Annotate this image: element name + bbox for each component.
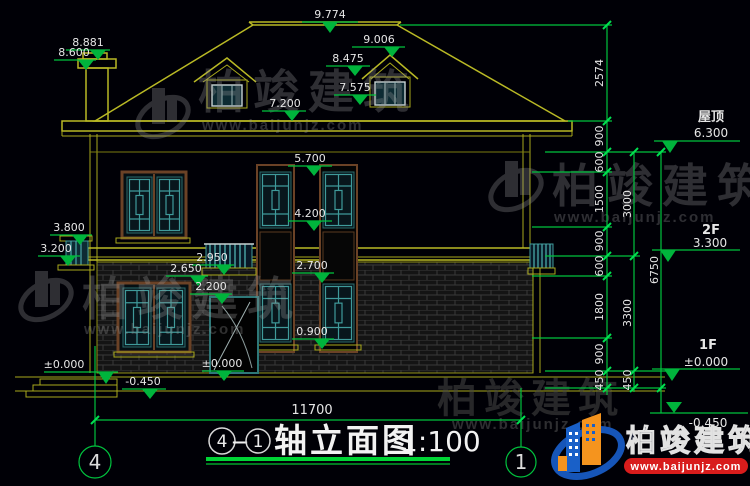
dim-chain-segment: 450 — [593, 370, 606, 391]
svg-text:-0.450: -0.450 — [125, 375, 160, 388]
logo-block-icon — [558, 456, 567, 471]
title-axis-start: 4 — [217, 432, 228, 452]
title-scale: 1:100 — [400, 425, 481, 458]
elevation-marker-ground-mid: -0.450 — [122, 375, 166, 399]
watermark-brand: 柏竣建筑 — [552, 160, 750, 212]
svg-text:±0.000: ±0.000 — [684, 355, 728, 369]
watermark-right: 柏竣建筑 www.baijunjz.com — [484, 160, 750, 226]
axis-bubble-left-label: 4 — [89, 450, 102, 474]
axis-bubble-right-label: 1 — [515, 450, 528, 474]
svg-text:3.200: 3.200 — [40, 242, 72, 255]
elevation-marker-chimney-cap: 8.600 — [54, 46, 96, 70]
dim-story-segment: 3300 — [621, 299, 634, 327]
second-floor-left-window — [116, 172, 190, 243]
watermark-url: www.baijunjz.com — [83, 321, 245, 338]
svg-text:2.700: 2.700 — [296, 259, 328, 272]
dim-story-segment: 450 — [621, 370, 634, 391]
watermark-brand: 柏竣建筑 — [82, 273, 302, 325]
dim-chain-segment: 1800 — [593, 293, 606, 321]
overall-dimension: 11700 — [291, 403, 332, 418]
title-underline — [206, 457, 450, 461]
dim-chain-segment: 900 — [593, 344, 606, 365]
dim-chain-segment: 900 — [593, 231, 606, 252]
svg-text:3.300: 3.300 — [693, 236, 727, 250]
title-axis-end: 1 — [253, 432, 264, 452]
title-text: 轴立面图 — [274, 422, 418, 459]
cad-canvas: 柏竣建筑 www.baijunjz.com 柏竣建筑 www.baijunjz.… — [0, 0, 750, 486]
dim-chain-segment: 1500 — [593, 185, 606, 213]
svg-text:7.575: 7.575 — [339, 81, 371, 94]
svg-text:7.200: 7.200 — [269, 97, 301, 110]
svg-text:9.774: 9.774 — [314, 8, 346, 21]
svg-text:2.650: 2.650 — [170, 262, 202, 275]
logo-brand: 柏竣建筑 — [626, 424, 750, 458]
svg-text:1F: 1F — [699, 338, 717, 353]
svg-text:3.800: 3.800 — [53, 221, 85, 234]
entry-steps — [26, 379, 117, 397]
svg-text:8.475: 8.475 — [332, 52, 364, 65]
level-marker-roof: 屋顶 6.300 — [654, 110, 740, 153]
logo-url: www.baijunjz.com — [630, 461, 742, 473]
svg-text:±0.000: ±0.000 — [44, 358, 85, 371]
dim-chain-segment: 2574 — [593, 59, 606, 87]
svg-text:屋顶: 屋顶 — [698, 110, 724, 125]
elevation-marker-ridge: 9.774 — [302, 8, 358, 33]
dim-chain-segment: 600 — [593, 152, 606, 173]
svg-text:0.900: 0.900 — [296, 325, 328, 338]
drawing-title: 4 — 1 轴立面图 1:100 — [206, 422, 481, 465]
svg-text:5.700: 5.700 — [294, 152, 326, 165]
svg-text:2.200: 2.200 — [195, 280, 227, 293]
svg-text:4.200: 4.200 — [294, 207, 326, 220]
level-marker-2f: 2F 3.300 — [652, 223, 740, 262]
dim-total-right: 6750 — [648, 256, 661, 284]
dim-story-segment: 3000 — [621, 190, 634, 218]
svg-text:8.600: 8.600 — [58, 46, 90, 59]
title-underline-2 — [206, 463, 450, 465]
level-marker-1f: 1F ±0.000 — [652, 338, 740, 381]
elevation-drawing: 柏竣建筑 www.baijunjz.com 柏竣建筑 www.baijunjz.… — [0, 0, 750, 486]
svg-text:±0.000: ±0.000 — [202, 357, 243, 370]
logo-building-orange-icon — [582, 413, 601, 465]
dim-chain-segment: 600 — [593, 256, 606, 277]
watermark-brand: 柏竣建筑 — [198, 66, 418, 118]
svg-text:6.300: 6.300 — [694, 126, 728, 140]
svg-text:9.006: 9.006 — [363, 33, 395, 46]
watermark-url: www.baijunjz.com — [201, 117, 363, 134]
dim-chain-segment: 900 — [593, 126, 606, 147]
